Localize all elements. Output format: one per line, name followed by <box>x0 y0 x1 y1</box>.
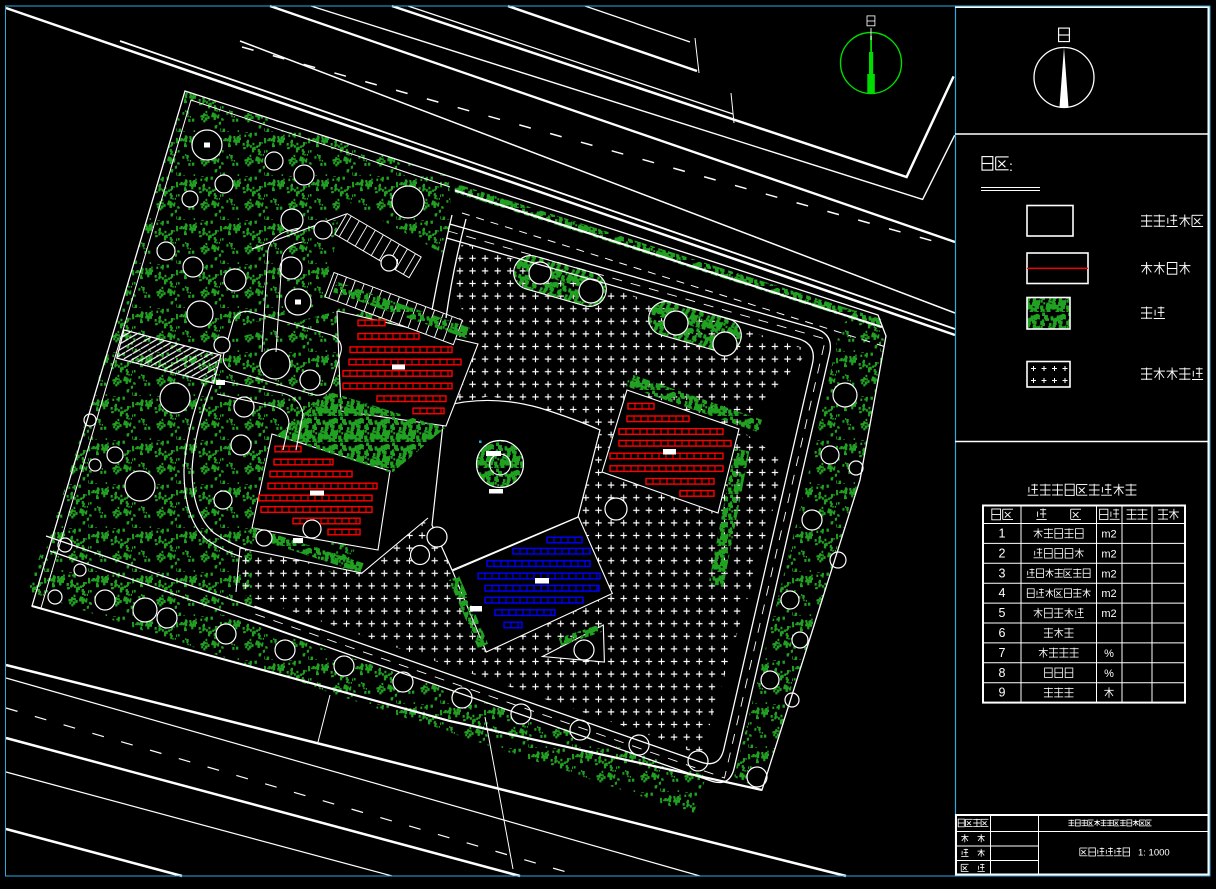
svg-text:m2: m2 <box>1101 568 1116 580</box>
svg-text:9: 9 <box>999 686 1006 700</box>
svg-text:m2: m2 <box>1101 529 1116 541</box>
svg-text:m2: m2 <box>1101 608 1116 620</box>
svg-text:%: % <box>1104 668 1114 680</box>
svg-text:6: 6 <box>999 626 1006 640</box>
svg-text:1: 1 <box>999 527 1006 541</box>
svg-text:4: 4 <box>999 586 1006 600</box>
svg-text:m2: m2 <box>1101 588 1116 600</box>
svg-text:7: 7 <box>999 646 1006 660</box>
svg-text:8: 8 <box>999 666 1006 680</box>
svg-text:3: 3 <box>999 566 1006 580</box>
svg-text:5: 5 <box>999 606 1006 620</box>
svg-text:%: % <box>1104 648 1114 660</box>
svg-text::: : <box>1009 158 1013 174</box>
svg-text:m2: m2 <box>1101 548 1116 560</box>
svg-text:1: 1000: 1: 1000 <box>1138 848 1170 859</box>
svg-text:2: 2 <box>999 546 1006 560</box>
